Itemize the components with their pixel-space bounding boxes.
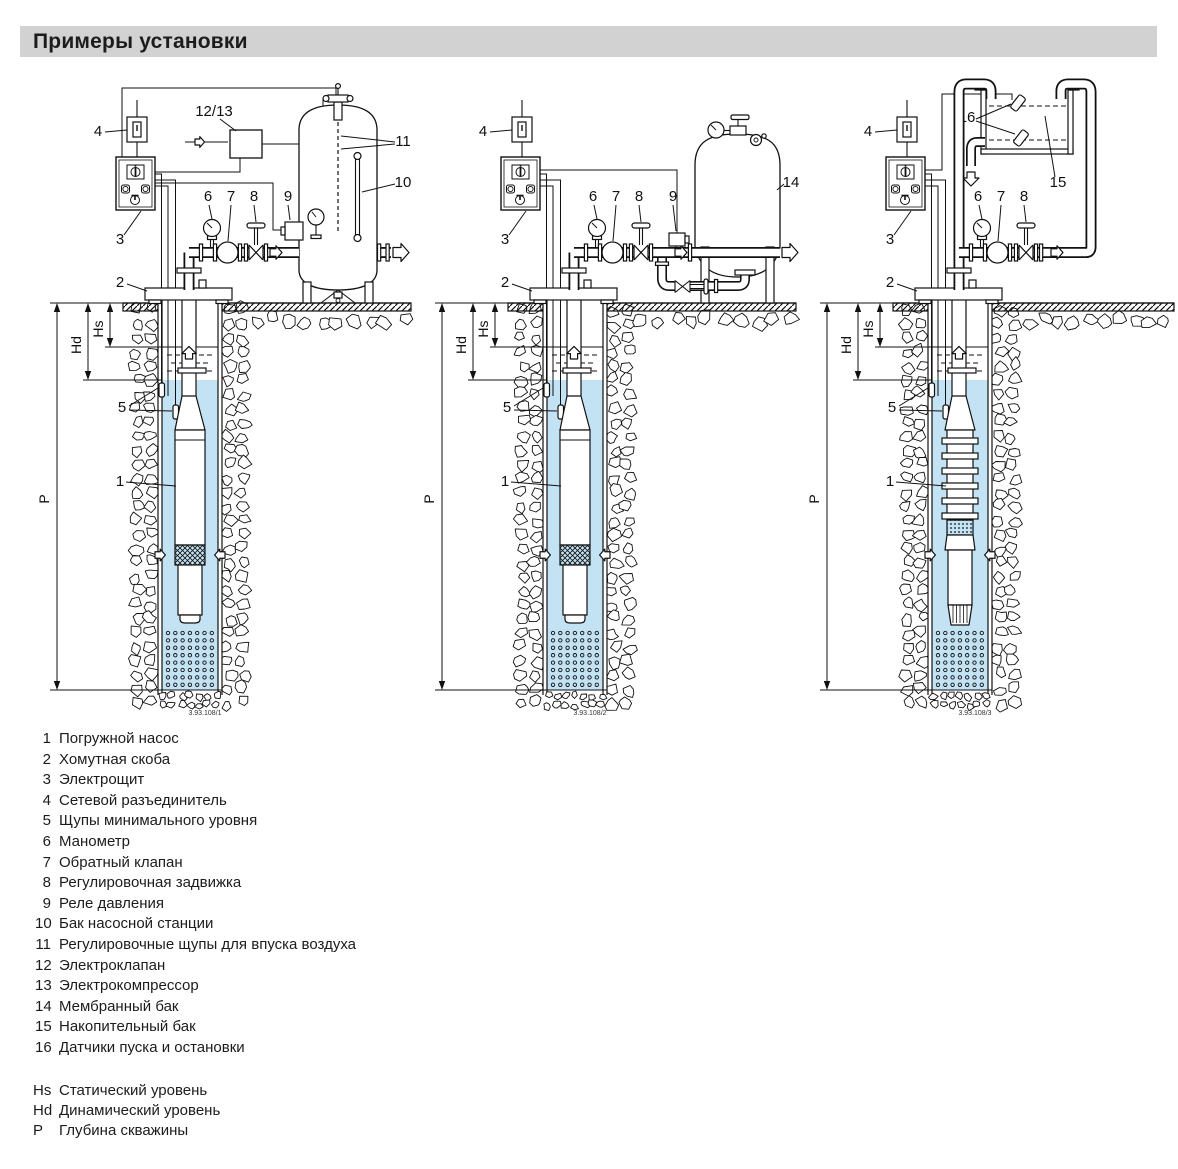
legend-item: 4Сетевой разъединитель [35,791,356,812]
dimension-legend-item: HsСтатический уровень [33,1081,220,1101]
legend-item: 5Щупы минимального уровня [35,811,356,832]
dim-hs: Hs [90,320,106,337]
callout-15: 15 [1050,174,1067,191]
legend-item-number: 10 [35,914,51,935]
legend-item-number: 8 [35,873,51,894]
callout-7: 7 [997,188,1005,205]
legend-item-number: 6 [35,832,51,853]
legend-item-number: 11 [35,935,51,956]
dimension-key: Р [33,1121,59,1141]
legend-item-number: 14 [35,997,51,1018]
legend-item: 13Электрокомпрессор [35,976,356,997]
dim-hd: Hd [68,336,84,354]
legend-item-label: Накопительный бак [59,1017,196,1038]
legend-item: 11Регулировочные щупы для впуска воздуха [35,935,356,956]
callout-10: 10 [395,174,412,191]
legend-item: 6Манометр [35,832,356,853]
legend-item-number: 4 [35,791,51,812]
callout-9: 9 [284,188,292,205]
dim-p: P [421,494,437,503]
callout-4: 4 [94,123,102,140]
dimension-key: Hd [33,1101,59,1121]
callout-14: 14 [783,174,800,191]
callout-3: 3 [886,231,894,248]
page-title: Примеры установки [20,26,1157,57]
legend-item-label: Обратный клапан [59,853,183,874]
dim-hs: Hs [860,320,876,337]
callout-3: 3 [116,231,124,248]
legend-item-label: Сетевой разъединитель [59,791,227,812]
callout-2: 2 [501,274,509,291]
installation-diagram-3: HsHdP2514316156783.93.108/3 [805,78,1178,728]
legend-item: 9Реле давления [35,894,356,915]
dim-hd: Hd [453,336,469,354]
legend: 1Погружной насос2Хомутная скоба3Электрощ… [35,729,356,1059]
legend-item: 10Бак насосной станции [35,914,356,935]
legend-item-label: Манометр [59,832,130,853]
callout-4: 4 [864,123,872,140]
callout-3: 3 [501,231,509,248]
callout-6: 6 [204,188,212,205]
dimension-label: Глубина скважины [59,1121,188,1141]
callout-7: 7 [227,188,235,205]
legend-item-label: Погружной насос [59,729,179,750]
figure-number: 3.93.108/2 [573,710,606,717]
callout-9: 9 [669,188,677,205]
legend-item: 2Хомутная скоба [35,750,356,771]
legend-item-label: Мембранный бак [59,997,178,1018]
callout-1: 1 [886,473,894,490]
legend-item-number: 7 [35,853,51,874]
legend-item-number: 2 [35,750,51,771]
callout-5: 5 [503,399,511,416]
callout-7: 7 [612,188,620,205]
legend-item: 16Датчики пуска и остановки [35,1038,356,1059]
legend-item: 14Мембранный бак [35,997,356,1018]
dimension-label: Статический уровень [59,1081,207,1101]
callout-1: 1 [116,473,124,490]
legend-item: 12Электроклапан [35,956,356,977]
dim-p: P [36,494,52,503]
legend-item-label: Регулировочная задвижка [59,873,241,894]
callout-2: 2 [116,274,124,291]
callout-5: 5 [118,399,126,416]
figure-number: 3.93.108/1 [188,710,221,717]
legend-item-number: 1 [35,729,51,750]
legend-item-label: Щупы минимального уровня [59,811,257,832]
callout-8: 8 [1020,188,1028,205]
callout-8: 8 [250,188,258,205]
dim-hd: Hd [838,336,854,354]
callout-6: 6 [974,188,982,205]
callout-1: 1 [501,473,509,490]
legend-item: 7Обратный клапан [35,853,356,874]
legend-item-label: Электрощит [59,770,144,791]
section-title-bar: Примеры установки [20,26,1157,57]
dimension-key: Hs [33,1081,59,1101]
legend-item-number: 5 [35,811,51,832]
legend-item: 15Накопительный бак [35,1017,356,1038]
legend-item-label: Датчики пуска и остановки [59,1038,245,1059]
legend-item-number: 16 [35,1038,51,1059]
callout-11: 11 [395,133,411,150]
legend-item-label: Регулировочные щупы для впуска воздуха [59,935,356,956]
callout-2: 2 [886,274,894,291]
legend-item-number: 13 [35,976,51,997]
callout-5: 5 [888,399,896,416]
dimension-label: Динамический уровень [59,1101,220,1121]
callout-8: 8 [635,188,643,205]
legend-item: 1Погружной насос [35,729,356,750]
dim-p: P [806,494,822,503]
dimension-legend-item: HdДинамический уровень [33,1101,220,1121]
callout-6: 6 [589,188,597,205]
dimension-legend: HsСтатический уровеньHdДинамический уров… [33,1081,220,1141]
legend-item: 8Регулировочная задвижка [35,873,356,894]
dim-hs: Hs [475,320,491,337]
legend-item-label: Электрокомпрессор [59,976,199,997]
legend-item-label: Реле давления [59,894,164,915]
installation-diagram-1: HsHdP2514312/13911106783.93.108/1 [35,78,425,728]
legend-item-number: 9 [35,894,51,915]
callout-4: 4 [479,123,487,140]
legend-item-label: Электроклапан [59,956,165,977]
legend-item-number: 15 [35,1017,51,1038]
dimension-legend-item: РГлубина скважины [33,1121,220,1141]
legend-item-number: 3 [35,770,51,791]
legend-item-label: Бак насосной станции [59,914,213,935]
callout-12-13: 12/13 [195,103,233,120]
installation-diagram-2: HsHdP251431467893.93.108/2 [420,78,810,728]
legend-item-number: 12 [35,956,51,977]
legend-item-label: Хомутная скоба [59,750,170,771]
legend-item: 3Электрощит [35,770,356,791]
figure-number: 3.93.108/3 [958,710,991,717]
